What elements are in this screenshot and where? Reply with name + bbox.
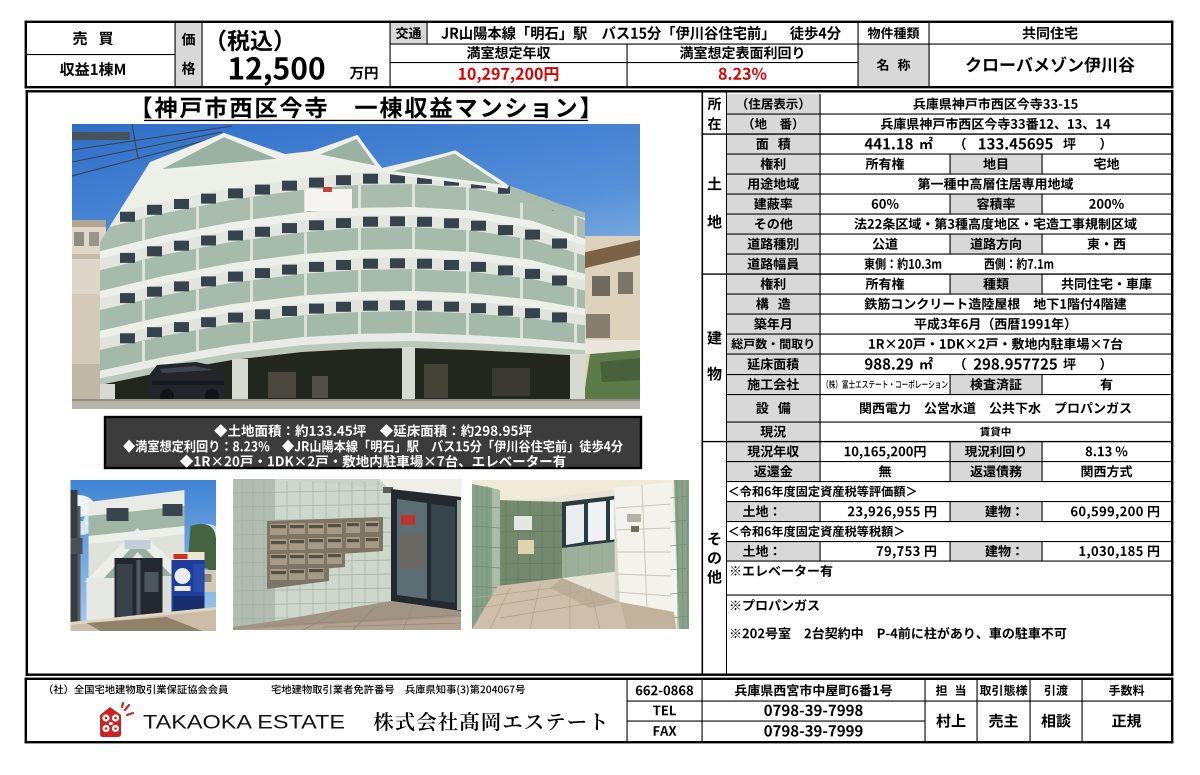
svg-text:TAKAOKA ESTATE: TAKAOKA ESTATE	[143, 713, 345, 734]
